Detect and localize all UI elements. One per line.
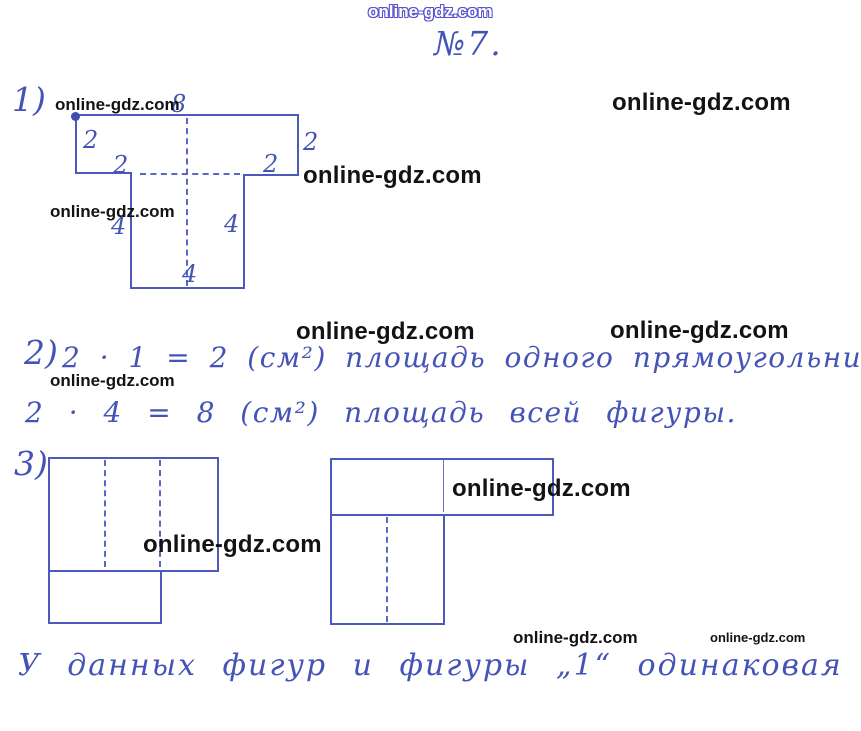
fig1-label-inner-right: 2	[263, 150, 278, 178]
fig1-stem-left-edge	[130, 174, 132, 289]
fig1-left-edge	[75, 114, 77, 174]
conclusion-sentence: У данных фигур и фигуры „1“ одинаковая п…	[18, 648, 861, 683]
watermark-b5: online-gdz.com	[452, 475, 631, 503]
fig1-label-inner-left: 2	[113, 151, 128, 179]
exercise-number-title: №7.	[434, 24, 503, 63]
watermark-b1: online-gdz.com	[612, 89, 791, 117]
fig3-top-bar-divider	[443, 460, 444, 512]
fig1-bottom-dashed-segment	[140, 173, 240, 175]
watermark-b6: online-gdz.com	[143, 531, 322, 559]
fig3-dashed-divider	[386, 517, 388, 622]
fig1-label-side-left: 2	[83, 126, 98, 154]
watermark-s3: online-gdz.com	[50, 371, 175, 391]
homework-scan-page: online-gdz.com online-gdz.com online-gdz…	[0, 0, 861, 731]
watermark-b2: online-gdz.com	[303, 162, 482, 190]
fig2-lower-rect	[48, 570, 162, 624]
fig1-label-side-right: 2	[303, 128, 318, 156]
fig1-label-stem-bottom: 4	[182, 260, 197, 288]
fig1-right-edge	[297, 114, 299, 176]
watermark-s2: online-gdz.com	[50, 202, 175, 222]
watermark-top-outline: online-gdz.com	[368, 2, 493, 22]
section-1-number: 1)	[12, 80, 46, 119]
watermark-b3: online-gdz.com	[296, 318, 475, 346]
calc-line-2: 2 · 4 = 8 (см²) площадь всей фигуры.	[25, 396, 737, 429]
watermark-s5: online-gdz.com	[710, 630, 805, 645]
fig1-label-stem-right: 4	[224, 210, 239, 238]
watermark-s1: online-gdz.com	[55, 95, 180, 115]
section-3-number: 3)	[14, 444, 48, 483]
watermark-s4: online-gdz.com	[513, 628, 638, 648]
section-2-number: 2)	[24, 333, 58, 372]
watermark-b4: online-gdz.com	[610, 317, 789, 345]
fig1-stem-right-edge	[243, 176, 245, 289]
fig2-dashed-divider-1	[104, 460, 106, 567]
